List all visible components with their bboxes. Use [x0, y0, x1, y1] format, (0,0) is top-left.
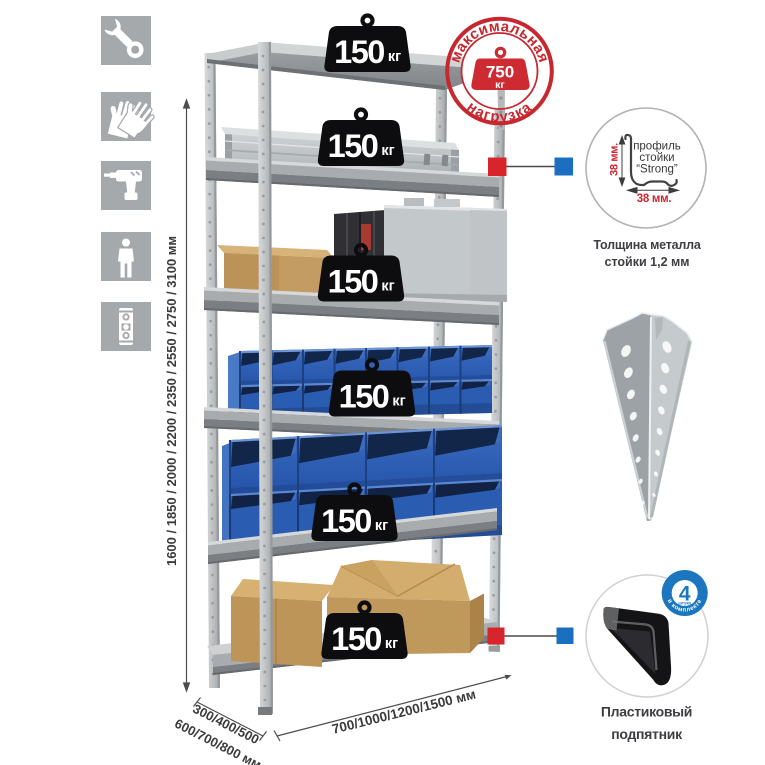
svg-text:Толщина металла: Толщина металла	[593, 238, 702, 252]
svg-text:кг: кг	[375, 518, 388, 534]
svg-text:подпятник: подпятник	[611, 726, 683, 742]
svg-text:38 мм.: 38 мм.	[637, 193, 672, 205]
svg-text:150: 150	[334, 34, 384, 70]
svg-text:стойки: стойки	[639, 152, 674, 164]
svg-text:кг: кг	[392, 394, 405, 410]
svg-text:кг: кг	[381, 143, 394, 159]
svg-text:150: 150	[321, 503, 371, 539]
svg-text:150: 150	[328, 128, 378, 164]
svg-text:1600 / 1850 / 2000 / 2200 / 23: 1600 / 1850 / 2000 / 2200 / 2350 / 2550 …	[164, 236, 179, 566]
svg-text:кг: кг	[381, 279, 394, 295]
svg-text:38 мм.: 38 мм.	[609, 143, 621, 176]
svg-text:150: 150	[339, 379, 389, 415]
svg-text:штуки: штуки	[678, 601, 691, 606]
svg-text:“Strong”: “Strong”	[636, 164, 678, 176]
svg-text:Пластиковый: Пластиковый	[601, 704, 692, 720]
svg-text:150: 150	[328, 264, 378, 300]
svg-text:кг: кг	[388, 49, 401, 65]
svg-text:стойки 1,2 мм: стойки 1,2 мм	[605, 255, 690, 269]
svg-text:профиль: профиль	[633, 141, 681, 153]
svg-text:150: 150	[331, 621, 381, 657]
svg-text:кг: кг	[495, 79, 505, 91]
svg-text:кг: кг	[385, 636, 398, 652]
